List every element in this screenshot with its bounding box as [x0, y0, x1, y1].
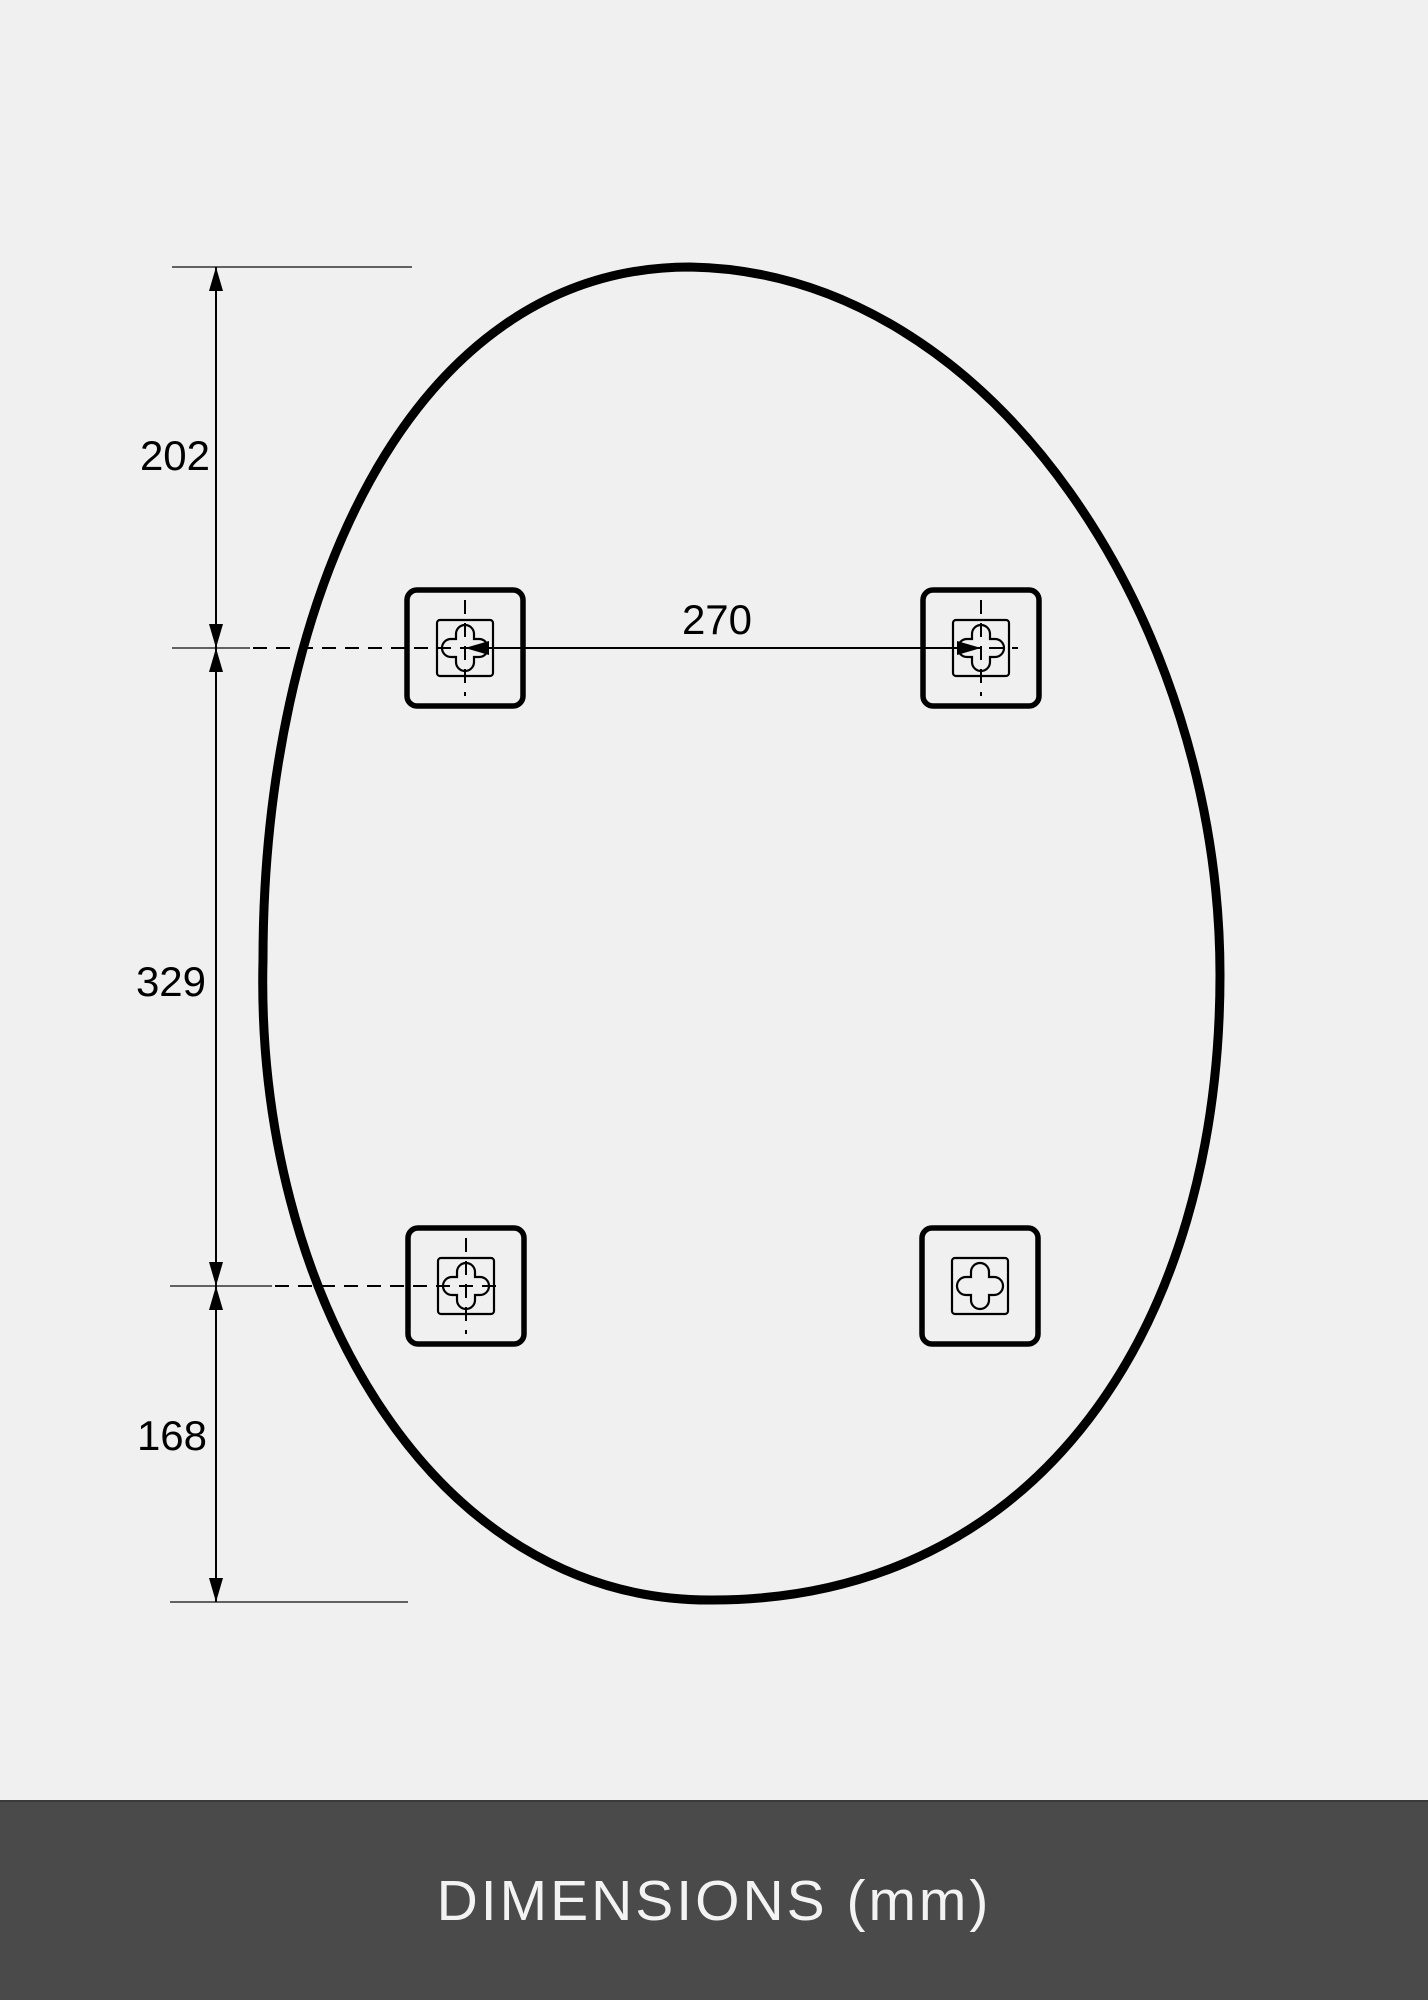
- arrowhead-up-upper: [209, 648, 223, 672]
- dimension-diagram: 202 329 168 270: [0, 0, 1428, 1800]
- mirror-outline: [263, 267, 1220, 1600]
- dimension-label-202: 202: [140, 432, 210, 479]
- footer-caption: DIMENSIONS (mm): [437, 1868, 992, 1934]
- dimension-diagram-page: 202 329 168 270: [0, 0, 1428, 2000]
- arrowhead-up-lower: [209, 1286, 223, 1310]
- arrowhead-down-bottom: [209, 1578, 223, 1602]
- footer-bar: DIMENSIONS (mm): [0, 1800, 1428, 2000]
- dimension-label-168: 168: [137, 1412, 207, 1459]
- arrowhead-down-lower: [209, 1262, 223, 1286]
- mounting-bracket-bottom-right: [922, 1228, 1038, 1344]
- bracket-outer-square: [922, 1228, 1038, 1344]
- dimension-label-270: 270: [682, 596, 752, 643]
- arrowhead-down-upper: [209, 624, 223, 648]
- bracket-cross-slot-icon: [957, 1263, 1003, 1309]
- arrowhead-up-top: [209, 267, 223, 291]
- dimension-label-329: 329: [136, 958, 206, 1005]
- bracket-inner-square: [952, 1258, 1008, 1314]
